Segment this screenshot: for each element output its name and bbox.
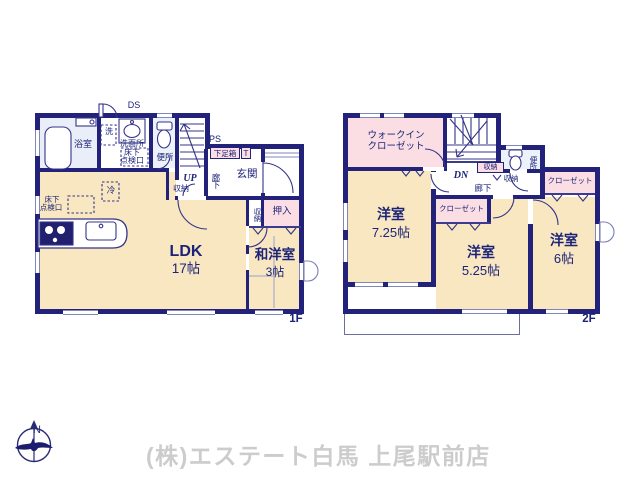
shutter-box-2f <box>600 222 614 242</box>
toilet-label-1f: 便所 <box>152 153 178 162</box>
floor-hatch-ldk <box>68 196 94 213</box>
washitsu-door-arc <box>248 228 267 247</box>
bath-counter-icon <box>76 118 96 126</box>
side-storage-label: 収納 <box>250 201 261 227</box>
duct-space-label: DS <box>124 101 144 111</box>
closet-door-marks <box>402 171 424 176</box>
toilet-bowl-icon-2f <box>510 156 521 170</box>
stairs-up-label: UP <box>179 173 201 184</box>
back-door-leaf <box>99 104 103 117</box>
toilet-label-2f: 便所 <box>527 150 537 174</box>
oshiire-label: 押入 <box>266 207 298 217</box>
closet-right-label: クローゼット <box>546 177 594 185</box>
hallway-label-1f: 廊下 <box>209 166 220 194</box>
toilet-bowl-icon <box>158 130 171 148</box>
hall-storage-label-2f: 収納 <box>498 175 524 183</box>
ldk-label: LDK <box>150 243 222 261</box>
room725-label: 洋室 <box>358 207 424 222</box>
room725-door-arc <box>431 174 449 192</box>
stairs-dn-label: DN <box>449 170 473 181</box>
entrance-label: 玄関 <box>229 169 265 181</box>
room525-door-arc <box>493 197 514 218</box>
floor1-label: 1F <box>286 313 306 326</box>
ldk-door-arc <box>178 200 207 229</box>
bath-label: 浴室 <box>66 140 100 150</box>
pipe-space-label: PS <box>205 135 225 145</box>
compass-n-letter: N <box>33 424 41 436</box>
closet-center-label: クローゼット <box>438 205 485 213</box>
burner-icon <box>53 238 57 242</box>
ldk-size-label: 17帖 <box>150 262 222 277</box>
burner-icon <box>45 226 53 234</box>
washitsu-label: 和洋室 <box>247 248 303 263</box>
stairs-fan-2f <box>450 115 473 145</box>
room525-size-label: 5.25帖 <box>446 264 516 278</box>
wic-label-line2: クローゼット <box>352 142 440 152</box>
stair-storage-label-1f: 収納 <box>167 185 195 194</box>
washroom-hatch-label2: 点検口 <box>114 157 150 166</box>
closet-door-marks <box>253 228 296 234</box>
stairs-treads-2f-lower <box>447 145 496 159</box>
compass-north-icon: N <box>10 416 58 472</box>
back-door-arc <box>103 104 117 118</box>
room725-size-label: 7.25帖 <box>358 226 424 240</box>
room525-label: 洋室 <box>446 245 516 260</box>
floor-hatch-label2: 点検口 <box>36 204 66 212</box>
wic-label-line1: ウォークイン <box>352 131 440 141</box>
washitsu-size-label: 3帖 <box>247 266 303 279</box>
company-name: (株)エステート白馬 上尾駅前店 <box>146 437 546 471</box>
floor2-label: 2F <box>578 313 600 326</box>
closet-door-marks <box>447 224 480 230</box>
room6-door-arc <box>533 200 558 225</box>
shutter-box-1f <box>304 261 318 281</box>
toilet-tank-icon <box>157 122 172 130</box>
room6-size-label: 6帖 <box>534 252 594 266</box>
fridge-label: 冷 <box>104 186 118 195</box>
closet-door-marks <box>552 195 588 201</box>
entrance-step-lines <box>265 153 299 157</box>
entrance-door-arc <box>263 162 293 193</box>
floor-plan-canvas: 下足箱 T 収納 <box>0 0 640 480</box>
burner-icon <box>57 226 65 234</box>
washing-machine-label: 洗 <box>103 128 115 137</box>
room6-label: 洋室 <box>534 233 594 248</box>
hallway-label-2f: 廊下 <box>468 184 498 193</box>
